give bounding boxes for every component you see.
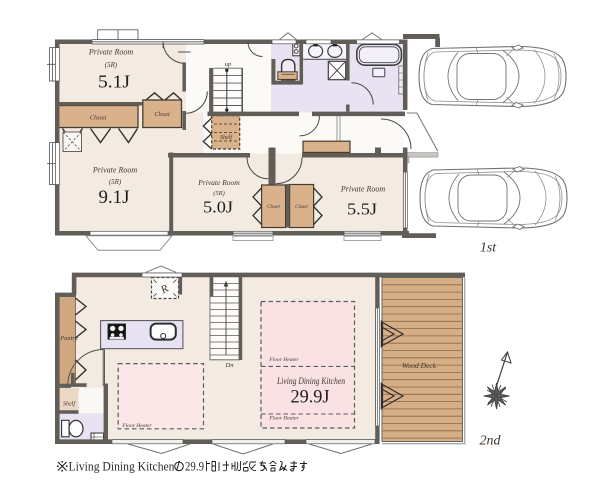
svg-text:Private Room: Private Room bbox=[197, 178, 240, 187]
svg-text:29.9: 29.9 bbox=[185, 460, 204, 474]
svg-text:9.1J: 9.1J bbox=[99, 187, 130, 208]
svg-text:Shelf: Shelf bbox=[220, 134, 233, 141]
svg-text:5.1J: 5.1J bbox=[98, 72, 130, 92]
svg-text:Closet: Closet bbox=[295, 205, 308, 210]
svg-text:Floor Heater: Floor Heater bbox=[121, 423, 152, 429]
svg-text:(5R): (5R) bbox=[109, 178, 122, 186]
svg-text:Living Dining Kitchen: Living Dining Kitchen bbox=[276, 376, 345, 386]
svg-text:Pantry: Pantry bbox=[59, 335, 78, 342]
svg-text:1st: 1st bbox=[480, 241, 497, 256]
svg-text:Private Room: Private Room bbox=[92, 166, 137, 175]
svg-text:up: up bbox=[225, 61, 232, 68]
svg-text:Shelf: Shelf bbox=[63, 401, 76, 408]
svg-text:Closet: Closet bbox=[90, 115, 107, 122]
svg-text:Private Room: Private Room bbox=[340, 185, 385, 194]
svg-text:5.5J: 5.5J bbox=[347, 200, 377, 219]
svg-text:Private Room: Private Room bbox=[88, 48, 133, 57]
svg-text:Wood Deck: Wood Deck bbox=[402, 361, 437, 370]
svg-text:2nd: 2nd bbox=[480, 434, 502, 449]
svg-text:29.9J: 29.9J bbox=[291, 388, 330, 408]
svg-text:Closet: Closet bbox=[267, 205, 280, 210]
svg-text:Closet: Closet bbox=[154, 112, 170, 118]
svg-text:Floor Heater: Floor Heater bbox=[268, 357, 299, 363]
svg-text:Floor Heater: Floor Heater bbox=[268, 416, 299, 422]
svg-text:Dn: Dn bbox=[225, 362, 234, 369]
svg-text:(5R): (5R) bbox=[105, 61, 118, 69]
svg-text:Living Dining Kitchen: Living Dining Kitchen bbox=[69, 460, 176, 474]
svg-text:(5R): (5R) bbox=[213, 190, 225, 197]
svg-text:5.0J: 5.0J bbox=[203, 198, 233, 217]
